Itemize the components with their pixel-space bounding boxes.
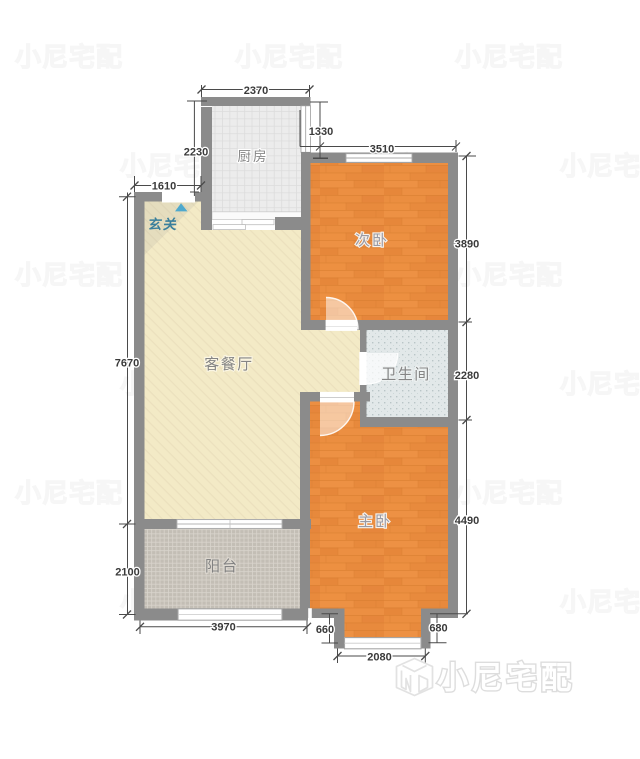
svg-text:680: 680 <box>429 623 447 635</box>
svg-text:客餐厅: 客餐厅 <box>204 356 254 373</box>
svg-text:小尼宅配: 小尼宅配 <box>560 151 640 181</box>
svg-text:小尼宅配: 小尼宅配 <box>437 661 575 696</box>
svg-text:2230: 2230 <box>184 147 208 159</box>
svg-text:厨房: 厨房 <box>238 149 269 164</box>
svg-text:小尼宅配: 小尼宅配 <box>560 369 640 399</box>
svg-text:2100: 2100 <box>115 567 139 579</box>
svg-text:4490: 4490 <box>455 515 479 527</box>
svg-text:小尼宅配: 小尼宅配 <box>560 587 640 617</box>
svg-text:小尼宅配: 小尼宅配 <box>15 260 123 290</box>
svg-text:小尼宅配: 小尼宅配 <box>455 478 563 508</box>
svg-text:主卧: 主卧 <box>358 513 392 530</box>
svg-text:阳台: 阳台 <box>205 558 239 575</box>
svg-text:小尼宅配: 小尼宅配 <box>455 260 563 290</box>
svg-text:小尼宅配: 小尼宅配 <box>235 42 343 72</box>
svg-text:3970: 3970 <box>211 622 235 634</box>
svg-text:3510: 3510 <box>370 144 394 156</box>
svg-text:2370: 2370 <box>244 85 268 97</box>
svg-text:小尼宅配: 小尼宅配 <box>15 42 123 72</box>
svg-text:1330: 1330 <box>309 126 333 138</box>
svg-text:7670: 7670 <box>115 358 139 370</box>
svg-text:卫生间: 卫生间 <box>381 366 431 383</box>
svg-text:3890: 3890 <box>455 239 479 251</box>
svg-text:2080: 2080 <box>367 652 391 664</box>
svg-text:小尼宅配: 小尼宅配 <box>455 42 563 72</box>
svg-text:小尼宅配: 小尼宅配 <box>15 478 123 508</box>
svg-text:660: 660 <box>316 624 334 636</box>
svg-text:1610: 1610 <box>152 181 176 193</box>
svg-text:2280: 2280 <box>455 370 479 382</box>
svg-text:次卧: 次卧 <box>355 232 389 249</box>
svg-text:玄关: 玄关 <box>147 216 179 232</box>
